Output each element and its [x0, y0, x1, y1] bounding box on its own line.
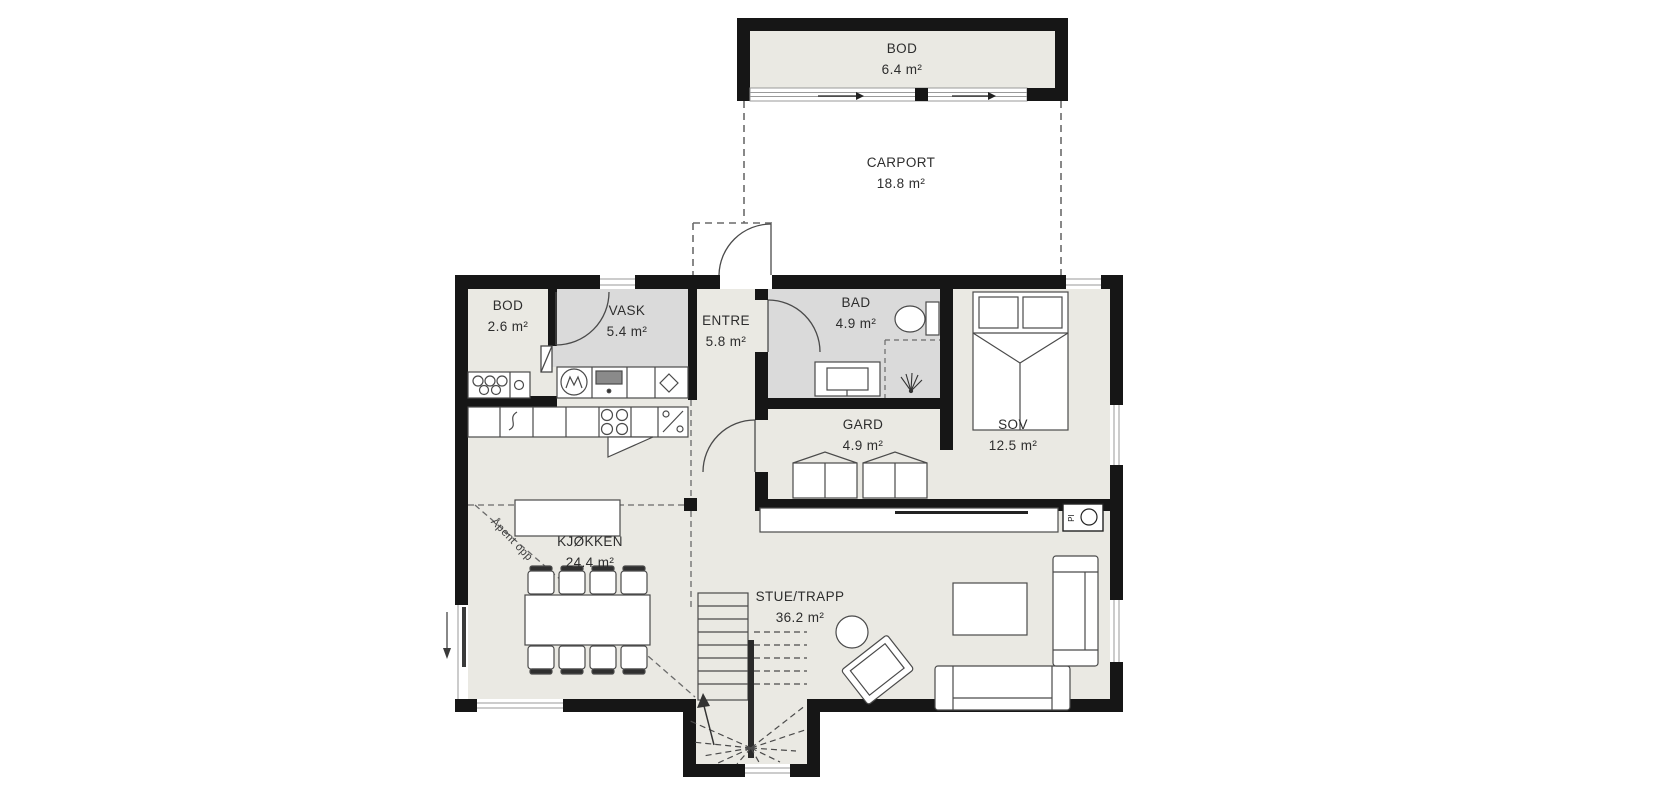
room-name: VASK [609, 303, 646, 318]
room-name: ENTRE [702, 313, 750, 328]
room-label-stue: STUE/TRAPP 36.2 m² [756, 586, 845, 628]
fireplace-icon: PI [1063, 504, 1103, 531]
room-name: BAD [842, 295, 871, 310]
room-name: SOV [998, 417, 1028, 432]
room-label-bod: BOD 2.6 m² [488, 295, 529, 337]
washing-machine-icon [561, 369, 587, 395]
entry-door-opening [720, 275, 772, 289]
room-label-bod-top: BOD 6.4 m² [882, 38, 923, 80]
window-top-sov [1066, 275, 1101, 289]
room-area: 4.9 m² [843, 435, 884, 456]
room-name: BOD [887, 41, 917, 56]
room-name: STUE/TRAPP [756, 589, 845, 604]
bathroom-sink-icon [815, 362, 880, 396]
room-area: 24.4 m² [557, 552, 623, 573]
room-label-vask: VASK 5.4 m² [607, 300, 648, 342]
slide-direction-arrow-icon [443, 648, 451, 659]
coffee-table-icon [953, 583, 1027, 635]
floor-plan-drawing: PI [0, 0, 1670, 800]
window-right-stue [1110, 600, 1123, 662]
room-area: 5.8 m² [702, 331, 750, 352]
sliding-door-left [443, 605, 468, 699]
room-name: CARPORT [867, 155, 936, 170]
bod-shelf-icon [468, 372, 530, 398]
room-label-entre: ENTRE 5.8 m² [702, 310, 750, 352]
tv-icon [895, 511, 1028, 514]
room-area: 2.6 m² [488, 316, 529, 337]
stair-newel [748, 640, 754, 758]
vask-counter [557, 367, 688, 398]
floor-plan-page: PI [0, 0, 1670, 800]
room-area: 18.8 m² [867, 173, 936, 194]
column-post [684, 498, 697, 511]
room-label-sov: SOV 12.5 m² [989, 414, 1038, 456]
bod-cabinet-door [541, 346, 552, 372]
room-area: 5.4 m² [607, 321, 648, 342]
window-right-sov [1110, 405, 1123, 465]
window-top-vask [600, 275, 635, 289]
room-name: BOD [493, 298, 523, 313]
room-label-gard: GARD 4.9 m² [843, 414, 884, 456]
room-area: 12.5 m² [989, 435, 1038, 456]
room-name: GARD [843, 417, 884, 432]
sofa-icon [935, 666, 1070, 710]
room-area: 36.2 m² [756, 607, 845, 628]
window-bottom-kitchen [477, 699, 563, 712]
fireplace-label: PI [1067, 514, 1076, 522]
entry-door [719, 224, 771, 275]
double-bed-icon [973, 292, 1068, 430]
laundry-sink-icon [596, 371, 622, 384]
garage-door-band [750, 88, 1068, 101]
room-label-bad: BAD 4.9 m² [836, 292, 877, 334]
sofa-right-icon [1053, 556, 1098, 666]
room-area: 6.4 m² [882, 59, 923, 80]
room-label-kjokken: KJØKKEN 24.4 m² [557, 531, 623, 573]
room-label-carport: CARPORT 18.8 m² [867, 152, 936, 194]
room-name: KJØKKEN [557, 534, 623, 549]
sideboard-icon [760, 508, 1058, 532]
window-stairwell [745, 764, 790, 777]
room-area: 4.9 m² [836, 313, 877, 334]
